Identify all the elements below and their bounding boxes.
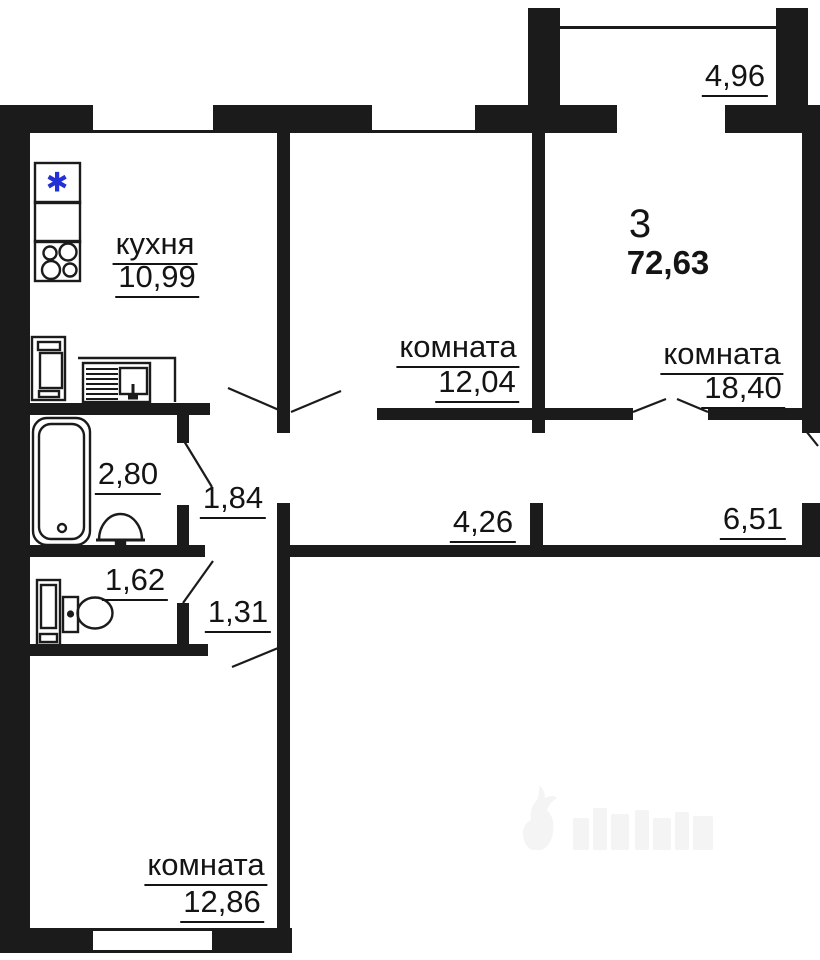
floor-plan: ✱ кухня 10,99 комната 12,04 комната 18,4… xyxy=(0,0,820,960)
burner-large-1 xyxy=(60,244,77,261)
kitchen-door-swing xyxy=(228,388,279,410)
corridor2-area-label: 6,51 xyxy=(720,503,786,540)
bathtub-outer xyxy=(33,418,90,545)
room3-area-label: 12,86 xyxy=(180,886,264,923)
room1-door-swing xyxy=(291,391,341,412)
kitchen-area-label: 10,99 xyxy=(115,261,199,298)
hall2-area-label: 1,31 xyxy=(205,596,271,633)
fridge-star-icon: ✱ xyxy=(46,170,69,197)
room3-name-label: комната xyxy=(144,849,267,886)
hall1-area-label: 1,84 xyxy=(200,482,266,519)
balcony-area-label: 4,96 xyxy=(702,60,768,97)
bathroom-area-label: 2,80 xyxy=(95,458,161,495)
kitchen-cabinet-door xyxy=(40,353,62,388)
bathtub-drain xyxy=(58,524,66,532)
burner-small-1 xyxy=(44,247,57,260)
sink-tap xyxy=(128,384,138,398)
room3-door-swing xyxy=(232,646,283,667)
kitchen-cabinet-bottom-drawer xyxy=(39,391,59,397)
entrance-door-swing xyxy=(806,431,818,446)
burner-large-2 xyxy=(42,261,60,279)
kitchen-counter-box xyxy=(35,202,80,242)
corridor1-area-label: 4,26 xyxy=(450,506,516,543)
room2-door-swing-left xyxy=(633,399,666,412)
room1-name-label: комната xyxy=(396,331,519,368)
burner-small-2 xyxy=(64,264,77,277)
room1-area-label: 12,04 xyxy=(435,366,519,403)
wc-area-label: 1,62 xyxy=(102,564,168,601)
wc-cabinet-door xyxy=(41,585,56,628)
wc-cabinet-drawer xyxy=(40,634,57,642)
room2-area-label: 18,40 xyxy=(701,372,785,409)
toilet-bowl xyxy=(78,598,113,629)
rooms-count-label: 3 xyxy=(629,203,651,245)
toilet-cistern-button xyxy=(68,612,73,617)
kitchen-cabinet-top-drawer xyxy=(38,342,60,350)
bathtub-inner xyxy=(39,424,84,539)
total-area-label: 72,63 xyxy=(627,246,710,281)
bath-sink-pedestal xyxy=(116,540,125,546)
drainboard-hatch xyxy=(86,369,118,399)
bath-sink xyxy=(99,514,142,540)
